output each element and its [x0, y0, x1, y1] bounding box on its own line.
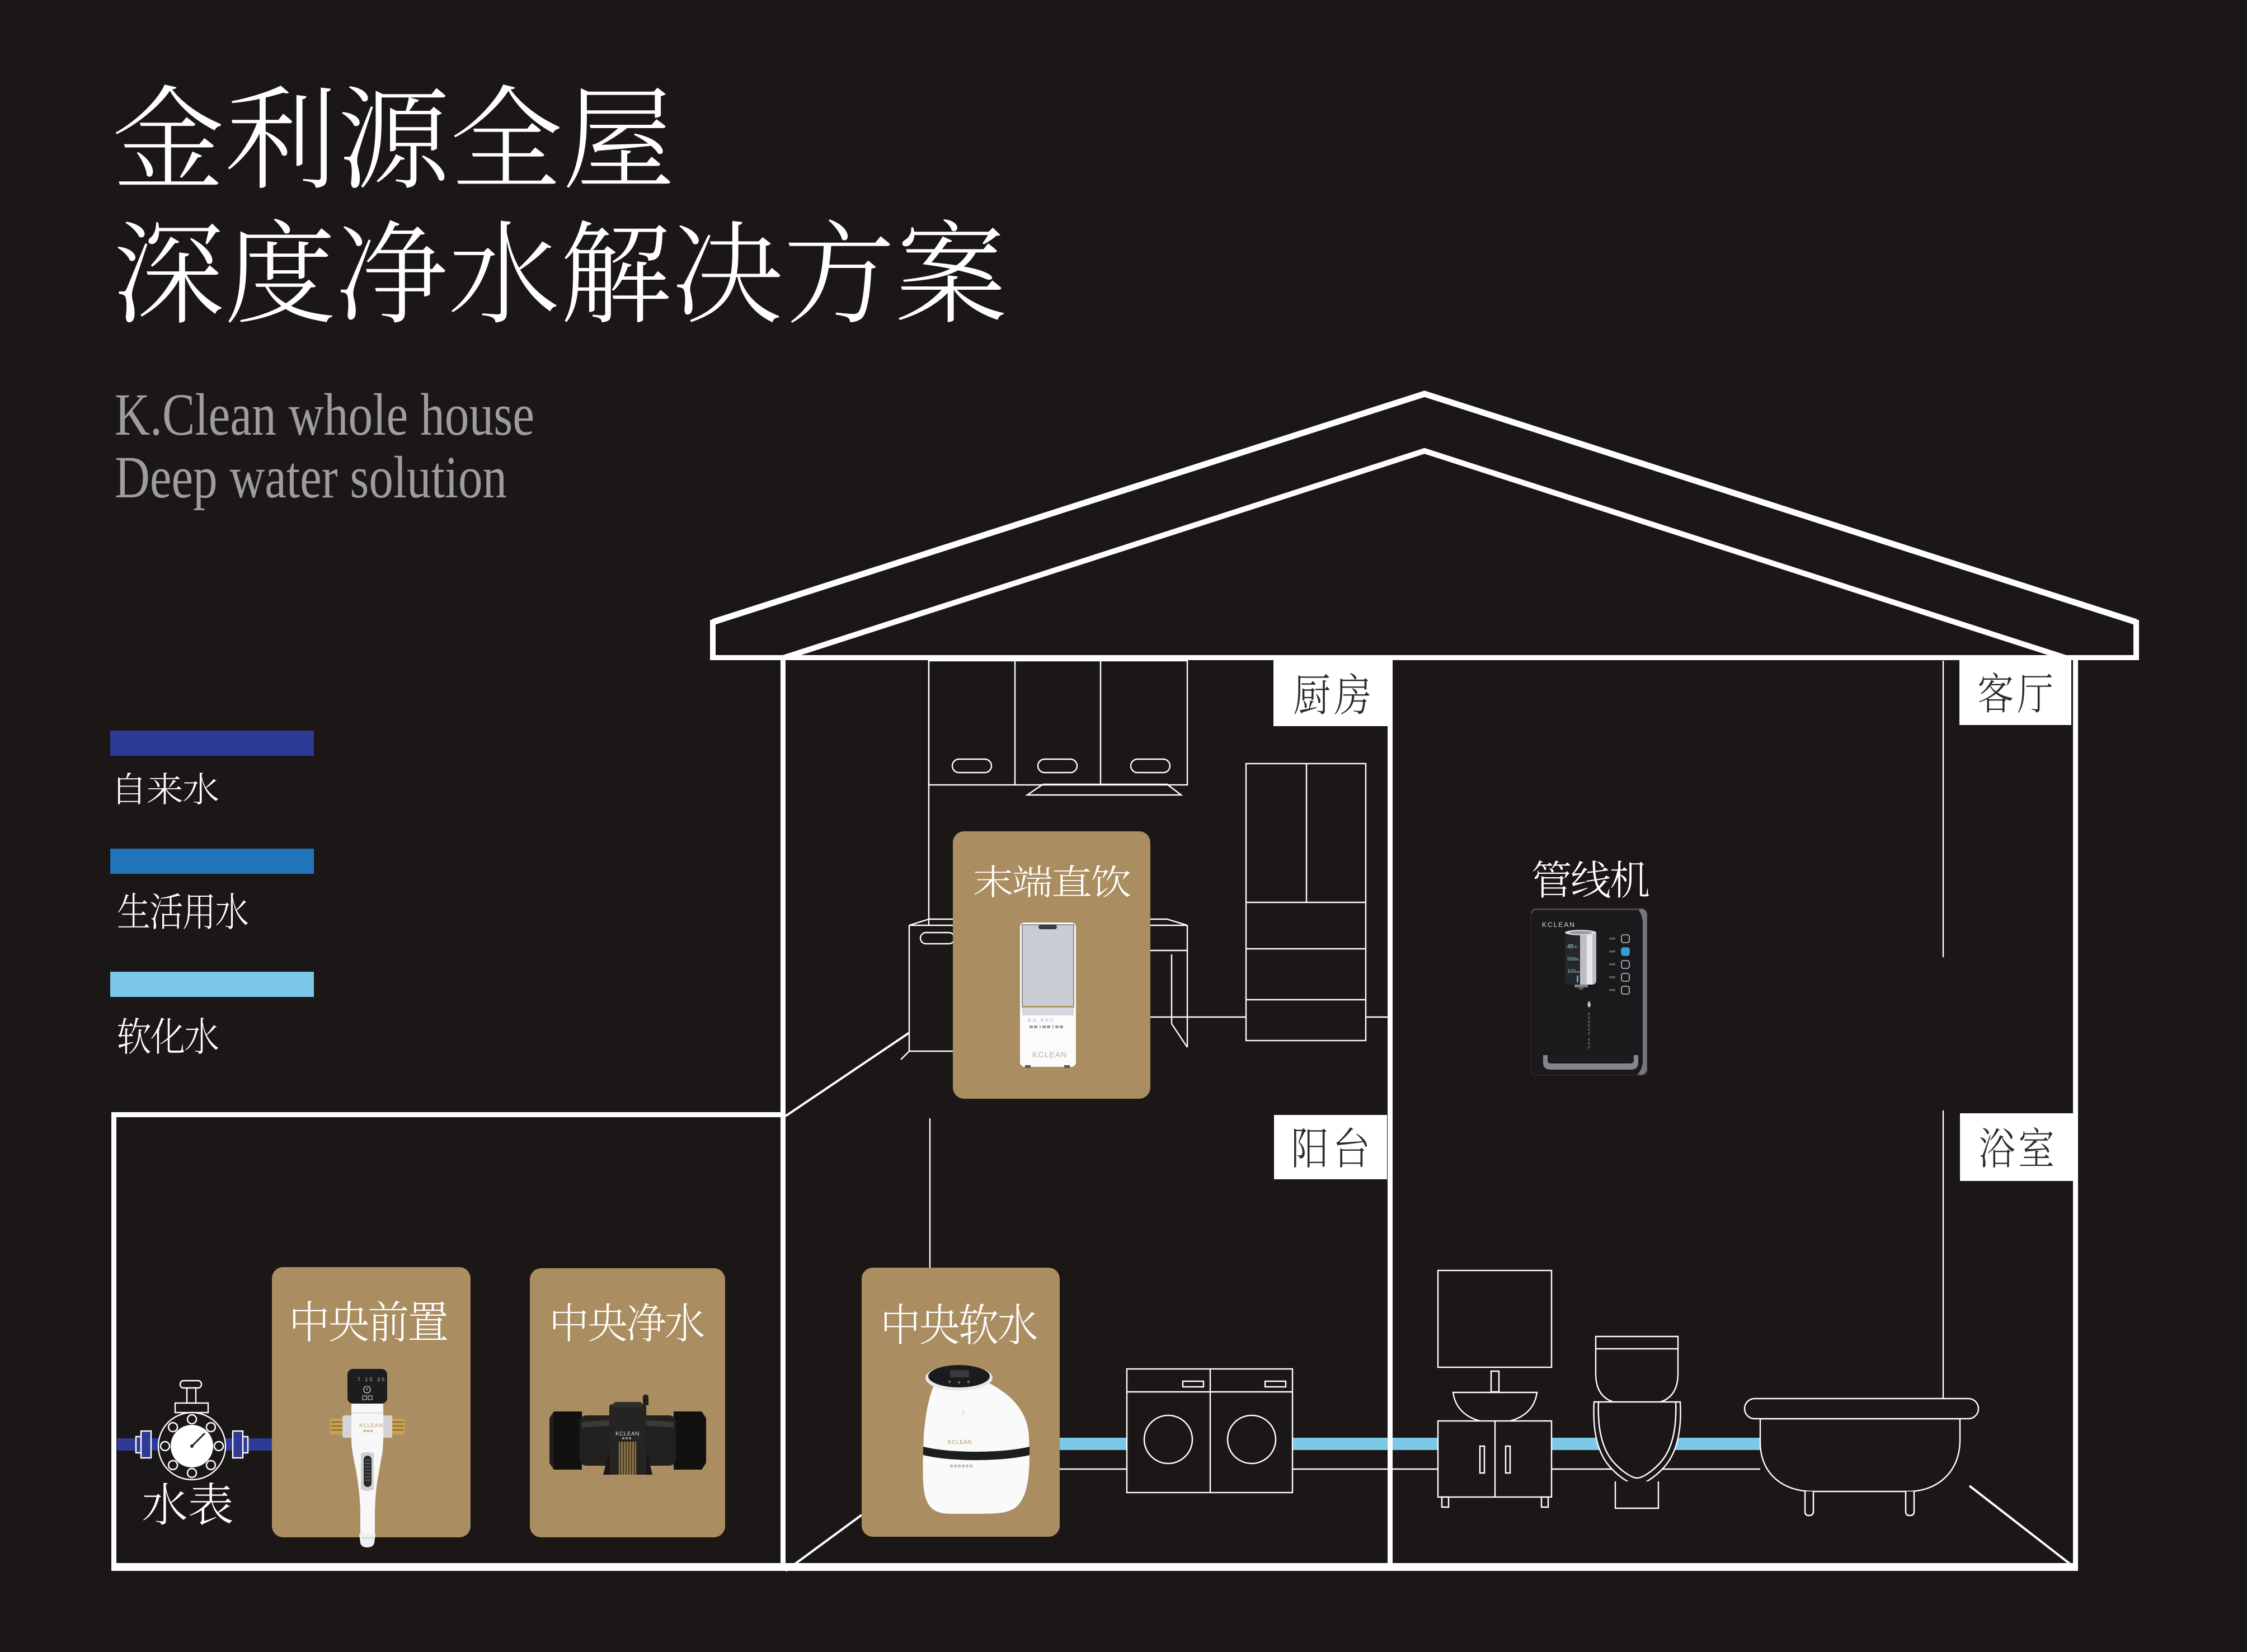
svg-text:KCLEAN: KCLEAN — [948, 1439, 972, 1446]
svg-text:Deep water solution: Deep water solution — [115, 445, 507, 511]
svg-text:KCLEAN: KCLEAN — [615, 1431, 640, 1437]
svg-text:RO PPC: RO PPC — [1028, 1018, 1055, 1023]
svg-text:KCLEAN: KCLEAN — [1032, 1050, 1067, 1059]
svg-text:KCLEAN: KCLEAN — [359, 1423, 383, 1429]
svg-text:7 15 30: 7 15 30 — [358, 1377, 386, 1382]
svg-text:K.Clean whole house: K.Clean whole house — [115, 382, 534, 448]
svg-text:KCLEAN: KCLEAN — [1542, 921, 1576, 929]
